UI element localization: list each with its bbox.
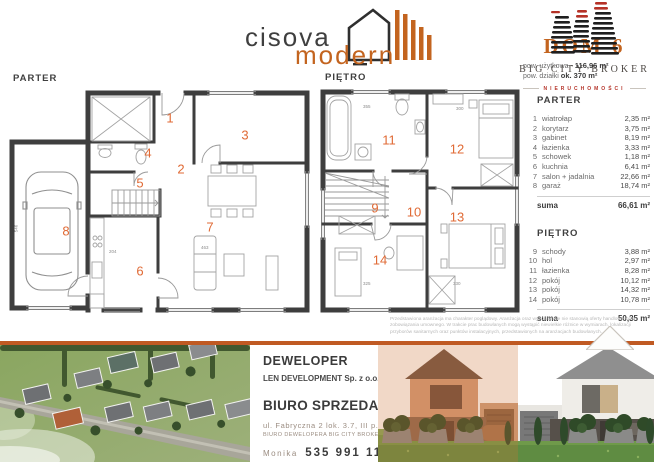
dimension-label: 204: [109, 249, 117, 254]
contact-name: Monika: [263, 449, 298, 458]
parter-sum-row: suma 66,61 m²: [537, 201, 650, 210]
room-number-label: 1: [166, 111, 173, 126]
room-row: 1wiatrołap2,35 m²: [524, 114, 650, 124]
room-row-name: hol: [542, 256, 603, 266]
room-row-name: pokój: [542, 285, 603, 295]
parter-list-header: PARTER: [537, 95, 650, 106]
room-row-number: 14: [524, 295, 537, 305]
room-row-name: gabinet: [542, 133, 603, 143]
room-number-label: 2: [177, 162, 184, 177]
room-row-area: 10,78 m²: [608, 295, 650, 305]
office-address: ul. Fabryczna 2 lok. 3.7, III p.: [263, 421, 377, 430]
room-row: 11łazienka8,28 m²: [524, 266, 650, 276]
room-list-column: PARTER 1wiatrołap2,35 m²2korytarz3,75 m²…: [524, 95, 650, 323]
broker-logo-block: DOM 6 pow. uży: [515, 2, 654, 98]
room-row-number: 13: [524, 285, 537, 295]
room-row-name: salon + jadalnia: [542, 172, 603, 182]
room-row: 9schody3,88 m²: [524, 247, 650, 257]
room-row-area: 14,32 m²: [608, 285, 650, 295]
room-number-label: 10: [407, 205, 421, 220]
room-row-area: 8,28 m²: [608, 266, 650, 276]
room-number-label: 5: [136, 176, 143, 191]
room-row-number: 12: [524, 276, 537, 286]
footer-band: DEWELOPER LEN DEVELOPMENT Sp. z o.o. BIU…: [0, 345, 654, 462]
room-number-label: 11: [382, 133, 396, 148]
room-row-number: 11: [524, 266, 537, 276]
divider-line: [537, 309, 650, 310]
room-row-name: kuchnia: [542, 162, 603, 172]
room-row-area: 2,97 m²: [608, 256, 650, 266]
room-row: 10hol2,97 m²: [524, 256, 650, 266]
room-number-label: 4: [144, 146, 151, 161]
street-houses-render: [378, 345, 654, 462]
sum-value: 66,61 m²: [600, 201, 650, 210]
room-number-label: 8: [62, 224, 69, 239]
contact-row: Monika 535 991 113: [263, 443, 377, 461]
room-row-number: 1: [524, 114, 537, 124]
pietro-room-list: 9schody3,88 m²10hol2,97 m²11łazienka8,28…: [524, 247, 650, 305]
room-number-label: 3: [241, 128, 248, 143]
area-usable: pow. użytkowa - 116,96 m²: [523, 61, 609, 70]
area-plot: pow. działki ok. 370 m²: [523, 71, 597, 80]
room-row: 3gabinet8,19 m²: [524, 133, 650, 143]
dimension-label: 325: [363, 281, 371, 286]
cisova-modern-logo: cisova modern: [243, 6, 448, 66]
room-row-number: 10: [524, 256, 537, 266]
developer-name: LEN DEVELOPMENT Sp. z o.o.: [263, 374, 377, 383]
parter-floor-plan: 12345678204463546: [8, 76, 310, 318]
room-number-label: 14: [373, 253, 387, 268]
room-row-name: pokój: [542, 295, 603, 305]
broker-subtitle: NIERUCHOMOŚCI: [515, 86, 654, 92]
divider-line: [537, 196, 650, 197]
room-row-number: 2: [524, 124, 537, 134]
room-row: 13pokój14,32 m²: [524, 285, 650, 295]
brand-name-bottom: modern: [295, 40, 395, 71]
room-row-name: pokój: [542, 276, 603, 286]
pietro-floor-plan: 91011121314355300325330: [315, 76, 525, 318]
developer-info: DEWELOPER LEN DEVELOPMENT Sp. z o.o. BIU…: [263, 354, 377, 461]
room-row-number: 3: [524, 133, 537, 143]
room-row: 4łazienka3,33 m²: [524, 143, 650, 153]
accent-divider: [0, 341, 654, 345]
aerial-estate-render: [0, 345, 250, 462]
pietro-list-header: PIĘTRO: [537, 228, 650, 239]
room-row-number: 9: [524, 247, 537, 257]
towers-icon: [549, 2, 621, 60]
room-row: 8garaż18,74 m²: [524, 181, 650, 191]
room-row-number: 7: [524, 172, 537, 182]
dimension-label: 546: [13, 225, 18, 233]
room-row-name: łazienka: [542, 266, 603, 276]
room-row-area: 2,35 m²: [608, 114, 650, 124]
room-row-area: 3,88 m²: [608, 247, 650, 257]
room-row-name: garaż: [542, 181, 603, 191]
flyer-page: cisova modern DOM 6: [0, 0, 654, 462]
sales-office-label: BIURO SPRZEDAŻY: [263, 398, 377, 413]
room-row-name: schody: [542, 247, 603, 257]
room-row-name: łazienka: [542, 143, 603, 153]
roof-gable-peak: [586, 326, 634, 350]
sum-label: suma: [537, 201, 600, 210]
room-row: 14pokój10,78 m²: [524, 295, 650, 305]
room-row-area: 8,19 m²: [608, 133, 650, 143]
parter-room-list: 1wiatrołap2,35 m²2korytarz3,75 m²3gabine…: [524, 114, 650, 191]
room-row-number: 6: [524, 162, 537, 172]
room-row-number: 8: [524, 181, 537, 191]
room-number-label: 13: [450, 210, 464, 225]
room-row: 2korytarz3,75 m²: [524, 124, 650, 134]
room-row-area: 3,33 m²: [608, 143, 650, 153]
room-row-area: 3,75 m²: [608, 124, 650, 134]
room-row-number: 4: [524, 143, 537, 153]
room-number-label: 6: [136, 264, 143, 279]
room-row: 12pokój10,12 m²: [524, 276, 650, 286]
room-row: 5schowek1,18 m²: [524, 152, 650, 162]
room-row-name: korytarz: [542, 124, 603, 134]
room-number-label: 7: [206, 220, 213, 235]
dimension-label: 330: [453, 281, 461, 286]
dimension-label: 355: [363, 104, 371, 109]
room-row-area: 18,74 m²: [608, 181, 650, 191]
room-row-area: 22,66 m²: [608, 172, 650, 182]
room-row-area: 10,12 m²: [608, 276, 650, 286]
office-subtitle: BIURO DEWELOPERA BIG CITY BROKER: [263, 432, 377, 438]
room-row-name: wiatrołap: [542, 114, 603, 124]
room-row-area: 1,18 m²: [608, 152, 650, 162]
dimension-label: 300: [456, 106, 464, 111]
room-number-label: 9: [371, 201, 378, 216]
room-row: 6kuchnia6,41 m²: [524, 162, 650, 172]
room-row: 7salon + jadalnia22,66 m²: [524, 172, 650, 182]
room-row-area: 6,41 m²: [608, 162, 650, 172]
dimension-label: 463: [201, 245, 209, 250]
room-row-number: 5: [524, 152, 537, 162]
room-row-name: schowek: [542, 152, 603, 162]
developer-label: DEWELOPER: [263, 354, 377, 368]
room-number-label: 12: [450, 142, 464, 157]
